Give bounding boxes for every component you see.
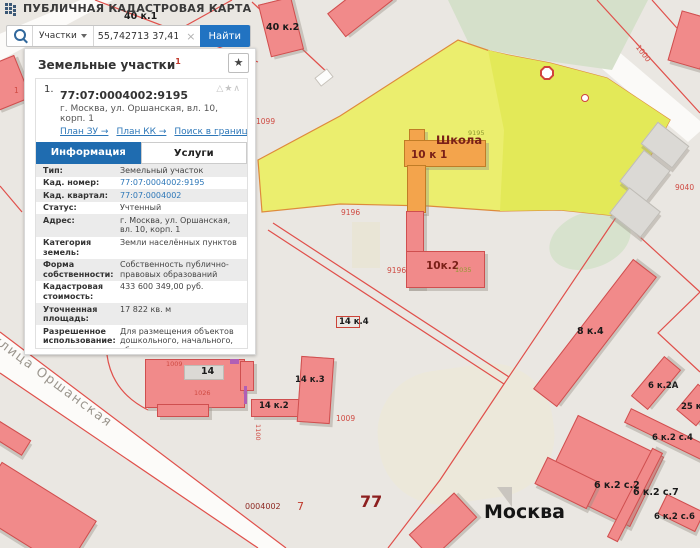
item-cad-number[interactable]: 77:07:0004002:9195: [60, 89, 188, 102]
link-plan-zu[interactable]: План ЗУ →: [60, 127, 108, 137]
info-label: Кадастровая стоимость:: [36, 282, 120, 301]
favorite-star-button[interactable]: ★: [228, 53, 249, 73]
building-14-inner[interactable]: [184, 365, 224, 380]
search-icon: [14, 29, 26, 41]
info-label: Уточненная площадь:: [36, 305, 120, 324]
item-address: г. Москва, ул. Оршанская, вл. 10, корп. …: [36, 103, 247, 124]
info-row: Кад. номер:77:07:0004002:9195: [36, 177, 247, 190]
map-tick-2: [230, 359, 239, 364]
pkk-logo-icon: [4, 2, 17, 15]
info-row: Форма собственности:Собственность публич…: [36, 259, 247, 281]
info-row: Уточненная площадь:17 822 кв. м: [36, 303, 247, 325]
building-14-lower[interactable]: [157, 404, 209, 417]
info-row: Категория земель:Земли населённых пункто…: [36, 237, 247, 259]
octagon-marker-inner: [542, 68, 552, 78]
search-bar: Участки × Найти: [6, 25, 251, 47]
link-search-in-bounds[interactable]: Поиск в границах объекта →: [174, 127, 248, 137]
search-input[interactable]: [94, 31, 183, 42]
info-label: Кад. номер:: [36, 178, 120, 188]
collapse-icon[interactable]: ∧: [233, 84, 241, 94]
info-value: Земельный участок: [120, 166, 247, 176]
info-row: Кадастровая стоимость:433 600 349,00 руб…: [36, 281, 247, 303]
item-index: 1.: [44, 84, 60, 95]
info-value[interactable]: 77:07:0004002:9195: [120, 178, 247, 188]
info-row: Тип:Земельный участок: [36, 164, 247, 177]
map-tick-1: [244, 386, 247, 404]
info-label: Статус:: [36, 203, 120, 213]
pkk-app: 40 к.140 к.211099Школа10 к 1919510009040…: [0, 0, 700, 548]
item-action-icons[interactable]: △★∧: [216, 84, 241, 94]
app-header: ПУБЛИЧНАЯ КАДАСТРОВАЯ КАРТА: [4, 2, 251, 15]
dot-marker[interactable]: [581, 94, 589, 102]
info-label: Форма собственности:: [36, 260, 120, 279]
find-button[interactable]: Найти: [200, 25, 250, 47]
gray-triangle-shape: [497, 487, 512, 507]
info-value: Собственность публично-правовых образова…: [120, 260, 247, 279]
building-14-ext[interactable]: [240, 361, 254, 391]
info-label: Тип:: [36, 166, 120, 176]
tab-information[interactable]: Информация: [36, 142, 141, 164]
info-row: Кад. квартал:77:07:0004002: [36, 189, 247, 202]
search-category-dropdown[interactable]: Участки: [32, 26, 94, 46]
info-value[interactable]: 77:07:0004002: [120, 191, 247, 201]
info-row: Адрес:г. Москва, ул. Оршанская, вл. 10, …: [36, 214, 247, 236]
search-category-label: Участки: [39, 31, 77, 41]
panel-title-count: 1: [175, 57, 181, 66]
info-value: Для размещения объектов дошкольного, нач…: [120, 327, 247, 349]
building-school[interactable]: [404, 140, 486, 167]
info-table: Тип:Земельный участокКад. номер:77:07:00…: [36, 164, 247, 349]
info-value: г. Москва, ул. Оршанская, вл. 10, корп. …: [120, 216, 247, 235]
building-10k2[interactable]: [406, 251, 485, 288]
building-14k4-outline[interactable]: [336, 316, 360, 328]
item-head: 1.77:07:0004002:9195 △★∧: [36, 79, 247, 103]
panel-title: Земельные участки1: [38, 58, 181, 72]
clear-icon[interactable]: ×: [182, 30, 199, 43]
info-row: Статус:Учтенный: [36, 202, 247, 215]
info-label: Кад. квартал:: [36, 191, 120, 201]
building-14k3[interactable]: [297, 356, 335, 424]
app-title: ПУБЛИЧНАЯ КАДАСТРОВАЯ КАРТА: [23, 2, 251, 15]
building-14k2[interactable]: [251, 399, 303, 417]
info-row: Разрешенное использование:Для размещения…: [36, 325, 247, 349]
item-tabs: Информация Услуги: [36, 142, 247, 164]
building-school-stem[interactable]: [407, 165, 426, 213]
stadium: [370, 355, 563, 512]
info-value: Учтенный: [120, 203, 247, 213]
tab-services[interactable]: Услуги: [141, 142, 248, 164]
results-panel: Земельные участки1 ★ 1.77:07:0004002:919…: [24, 48, 256, 355]
info-value: Земли населённых пунктов: [120, 238, 247, 257]
info-label: Категория земель:: [36, 238, 120, 257]
item-links: План ЗУ → План КК → Поиск в границах объ…: [36, 124, 247, 137]
beige-patch: [352, 222, 380, 268]
info-label: Адрес:: [36, 216, 120, 235]
info-value: 433 600 349,00 руб.: [120, 282, 247, 301]
parcel-result-item: 1.77:07:0004002:9195 △★∧ г. Москва, ул. …: [35, 78, 248, 349]
info-value: 17 822 кв. м: [120, 305, 247, 324]
panel-header: Земельные участки1 ★: [25, 49, 255, 75]
chevron-down-icon: [81, 34, 87, 38]
info-label: Разрешенное использование:: [36, 327, 120, 349]
link-plan-kk[interactable]: План КК →: [116, 127, 166, 137]
